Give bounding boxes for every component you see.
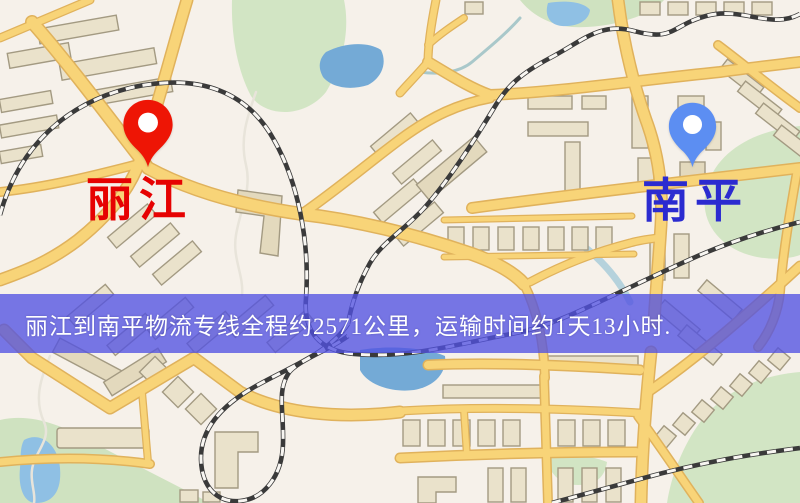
destination-pin-icon[interactable] [664, 100, 721, 169]
map-canvas[interactable] [0, 0, 800, 503]
map-view: 丽江到南平物流专线全程约2571公里，运输时间约1天13小时. 丽江 南平 [0, 0, 800, 503]
origin-label: 丽江 [86, 176, 192, 223]
origin-pin-icon[interactable] [119, 97, 177, 169]
route-info-text: 丽江到南平物流专线全程约2571公里，运输时间约1天13小时. [25, 307, 671, 341]
destination-label: 南平 [642, 177, 748, 224]
route-info-banner: 丽江到南平物流专线全程约2571公里，运输时间约1天13小时. [0, 294, 800, 353]
